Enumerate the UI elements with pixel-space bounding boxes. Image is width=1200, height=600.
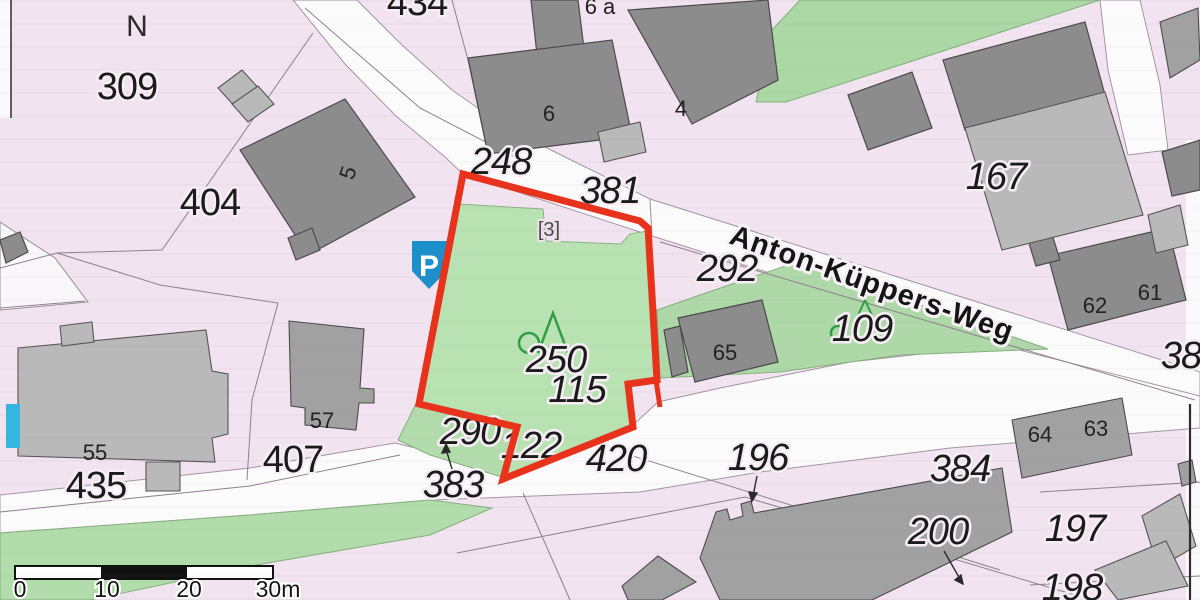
parking-icon-letter: P (419, 250, 439, 283)
parcel-label-404: 404 (180, 182, 241, 224)
scale-tick-0: 0 (14, 576, 27, 600)
parcel-label-38: 38 (1161, 335, 1200, 377)
building-label-63: 63 (1084, 416, 1108, 441)
parcel-label-167: 167 (966, 156, 1029, 198)
building-55 (18, 330, 228, 462)
building-label-6: 6 (543, 101, 555, 126)
building-label-61: 61 (1138, 280, 1162, 305)
parcel-label-196: 196 (728, 437, 790, 479)
scale-tick-30m: 30m (256, 576, 301, 600)
parcel-label-383: 383 (423, 464, 484, 506)
parcel-label-309: 309 (97, 66, 157, 108)
parcel-label-384: 384 (930, 448, 990, 490)
parcel-label-435: 435 (66, 465, 126, 507)
parcel-label-200: 200 (907, 511, 969, 553)
north-indicator: N (126, 10, 148, 43)
cyan-marker (6, 404, 20, 448)
reference-label: [3] (538, 219, 560, 241)
building-label-65: 65 (713, 340, 737, 365)
scale-tick-10: 10 (94, 576, 120, 600)
building-label-57: 57 (310, 408, 334, 433)
parcel-label-407: 407 (263, 439, 323, 481)
parcel-label-115: 115 (548, 369, 607, 411)
parcel-label-197: 197 (1045, 508, 1108, 550)
building-55-annex (146, 462, 180, 491)
building-55-top (60, 322, 94, 346)
building-label-64: 64 (1028, 422, 1052, 447)
building-label-4: 4 (675, 96, 687, 121)
building-label-62: 62 (1083, 293, 1107, 318)
scale-tick-20: 20 (176, 576, 202, 600)
parcel-label-198: 198 (1042, 567, 1103, 600)
cadastral-map: P 309404434435407 2483812921091672501152… (0, 0, 1200, 600)
parcel-label-434: 434 (387, 0, 448, 24)
parcel-label-109: 109 (832, 308, 893, 350)
map-canvas: P 309404434435407 2483812921091672501152… (0, 0, 1200, 600)
building-label-6a: 6 a (585, 0, 616, 19)
sheet-margin-left (0, 0, 11, 118)
building-label-55: 55 (83, 440, 107, 465)
